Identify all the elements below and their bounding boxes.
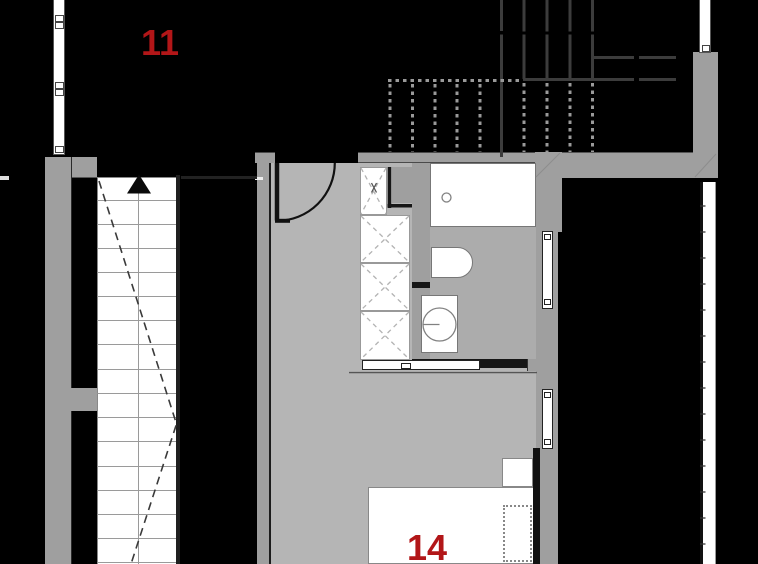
top-wall-mid <box>358 152 535 163</box>
roof-beams <box>502 0 677 157</box>
left-wall-pier <box>45 388 97 411</box>
stair-side-wall-line <box>176 175 180 564</box>
bathroom-wall-step <box>412 282 430 288</box>
sliding-door-handle <box>401 363 411 369</box>
left-wall <box>45 157 72 564</box>
room-11-label: 11 <box>141 25 179 61</box>
canopy-dashed-lines <box>388 81 593 153</box>
nightstand <box>502 458 533 487</box>
pillow <box>503 505 532 562</box>
wardrobe-tile-4 <box>360 311 410 360</box>
wardrobe-tile-2 <box>360 215 410 263</box>
top-wall-exterior <box>535 152 718 178</box>
floor-plan: 11 14 <box>0 0 758 564</box>
cut-tick-left <box>0 176 9 180</box>
right-wall-top-block <box>535 152 562 232</box>
bottom-wall-pier <box>527 359 537 371</box>
right-column <box>693 52 718 178</box>
wardrobe-tile-3 <box>360 263 410 311</box>
window-top-right <box>699 0 711 53</box>
room-left-wall <box>257 152 271 564</box>
bathroom-window <box>542 231 553 309</box>
bed-wall-edge <box>533 448 540 564</box>
balcony-railing <box>703 182 717 564</box>
toilet <box>431 247 473 278</box>
sliding-door <box>362 360 480 370</box>
staircase <box>97 177 176 564</box>
window-top-left <box>53 0 65 155</box>
top-wall-door-side <box>255 152 275 163</box>
sink-counter <box>430 163 536 227</box>
bedroom-window <box>542 389 553 449</box>
cut-tick-corner <box>255 177 263 180</box>
washing-machine <box>421 295 458 353</box>
room-14-label: 14 <box>407 530 447 564</box>
wardrobe-niche <box>392 167 412 203</box>
wardrobe-tile-1 <box>360 167 387 215</box>
